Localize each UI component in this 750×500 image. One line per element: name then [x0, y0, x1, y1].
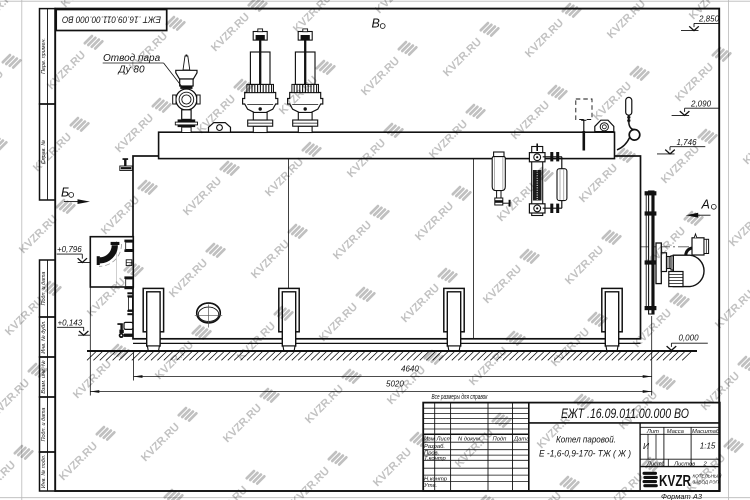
svg-text:Масса: Масса [667, 429, 685, 435]
svg-text:ЕЖТ .16.09.011.00.000 ВО: ЕЖТ .16.09.011.00.000 ВО [61, 14, 161, 25]
svg-text:Дата: Дата [513, 437, 530, 443]
svg-text:Лит: Лит [646, 429, 659, 435]
svg-text:+0,796: +0,796 [57, 245, 82, 254]
svg-text:Подп. и дата: Подп. и дата [41, 408, 47, 442]
svg-text:Листов: Листов [673, 461, 695, 467]
svg-text:Утв.: Утв. [423, 483, 437, 489]
svg-text:1: 1 [661, 461, 664, 467]
svg-text:Т.контр: Т.контр [424, 456, 447, 462]
svg-text:Формат А3: Формат А3 [661, 492, 703, 500]
svg-text:Б: Б [61, 186, 69, 200]
svg-text:Все размеры для справок: Все размеры для справок [432, 393, 488, 401]
svg-text:И: И [643, 441, 650, 451]
svg-text:А: А [701, 198, 710, 212]
svg-text:Инв. № подл.: Инв. № подл. [41, 455, 47, 488]
svg-text:Подп: Подп [493, 437, 508, 443]
svg-text:В: В [372, 17, 380, 31]
svg-text:2,090: 2,090 [690, 99, 712, 108]
svg-text:0,000: 0,000 [679, 333, 700, 342]
svg-text:Перв. примен.: Перв. примен. [41, 38, 47, 74]
svg-text:+0,143: +0,143 [58, 318, 83, 327]
svg-text:Масштаб: Масштаб [692, 429, 720, 435]
svg-text:Разраб.: Разраб. [424, 444, 445, 450]
svg-text:Е -1,6-0,9-170- ТЖ ( Ж ): Е -1,6-0,9-170- ТЖ ( Ж ) [539, 448, 631, 459]
svg-text:Лист: Лист [436, 437, 452, 443]
svg-text:Котел паровой.: Котел паровой. [556, 435, 616, 446]
svg-text:Н.контр: Н.контр [424, 477, 448, 483]
svg-text:1:15: 1:15 [700, 441, 716, 450]
svg-text:Инв. № дубл.: Инв. № дубл. [41, 320, 47, 353]
svg-text:Взам. инв. №: Взам. инв. № [41, 360, 47, 394]
